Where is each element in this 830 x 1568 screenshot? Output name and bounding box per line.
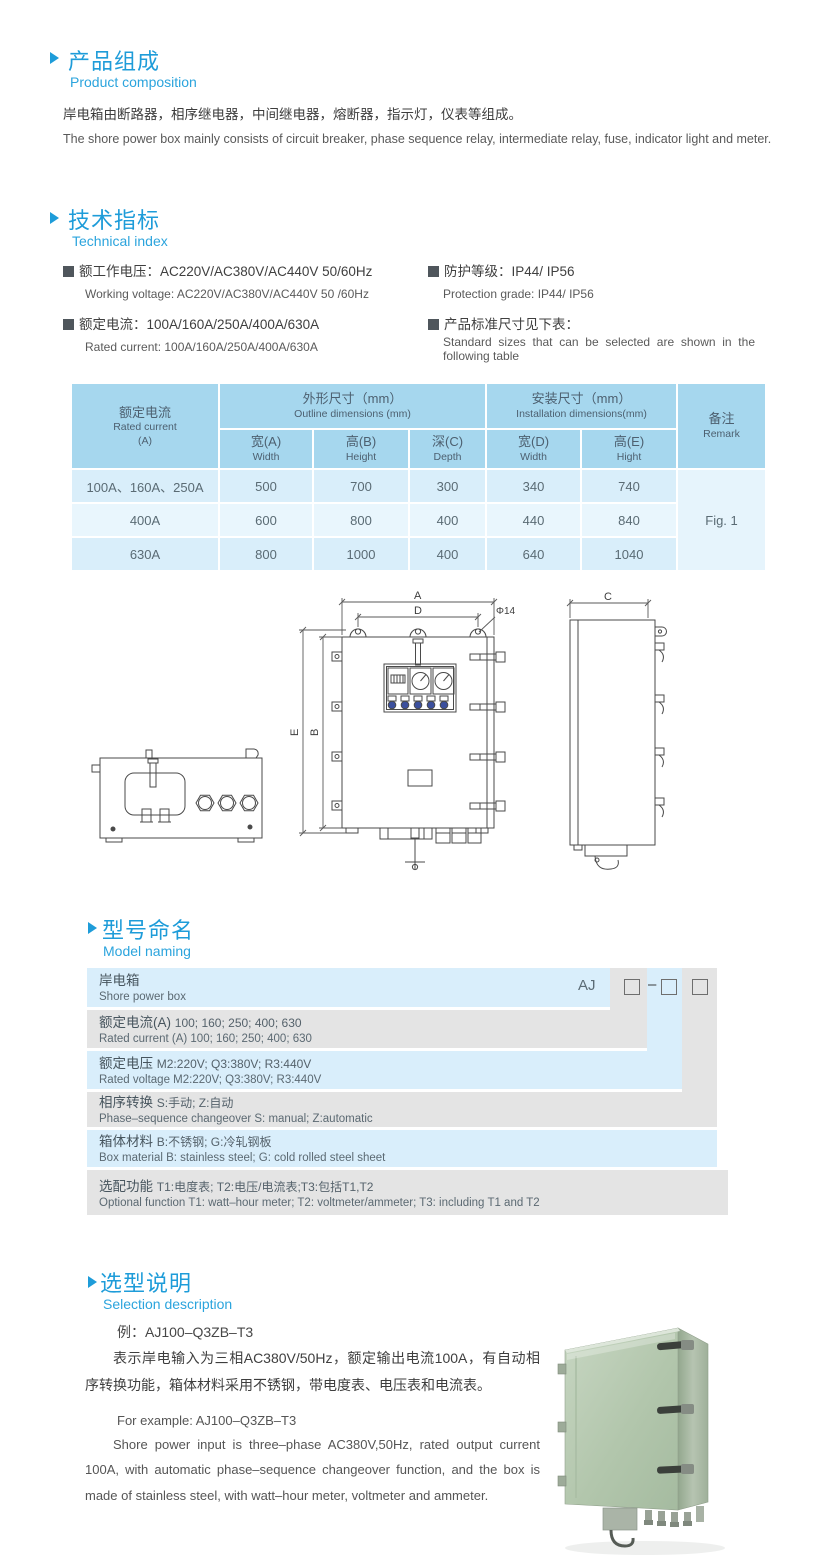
spec-standard-size-cn: 产品标准尺寸见下表：: [444, 317, 579, 332]
spec-protection: 防护等级：IP44/ IP56: [428, 260, 575, 280]
technical-title-en: Technical index: [72, 233, 168, 249]
cell-height: 800: [313, 503, 409, 537]
naming-desc-en: T1: watt–hour meter; T2: voltmeter/ammet…: [188, 1197, 539, 1209]
cell-install-height: 1040: [581, 537, 677, 571]
naming-desc-cn: B:不锈钢; G:冷轧钢板: [157, 1135, 272, 1149]
subheader-en: Hight: [582, 451, 676, 465]
header-outline-en: Outline dimensions (mm): [220, 408, 485, 422]
indicator-lights: [388, 696, 448, 709]
naming-label-en: Rated current (A): [99, 1033, 187, 1045]
spec-protection-en: Protection grade: IP44/ IP56: [443, 287, 594, 301]
naming-label-en: Shore power box: [99, 991, 186, 1003]
composition-body-cn: 岸电箱由断路器，相序继电器，中间继电器，熔断器，指示灯，仪表等组成。: [63, 103, 522, 123]
model-code-dash: –: [648, 976, 656, 993]
cell-current: 100A、160A、250A: [71, 469, 219, 503]
naming-row-shore-power-box: 岸电箱 Shore power box: [99, 972, 186, 1005]
cell-current: 630A: [71, 537, 219, 571]
dimension-labels: A D Φ14 E B C: [289, 590, 612, 736]
dim-label-c: C: [604, 591, 612, 603]
size-table: 额定电流 Rated current (A) 外形尺寸（mm） Outline …: [70, 382, 767, 572]
cell-install-width: 440: [486, 503, 581, 537]
dimension-lines: [299, 598, 651, 836]
product-photo: [545, 1298, 730, 1568]
naming-label-cn: 额定电压: [99, 1056, 153, 1071]
square-bullet-icon: [428, 319, 439, 330]
naming-row-rated-current: 额定电流(A) 100; 160; 250; 400; 630 Rated cu…: [99, 1014, 312, 1047]
technical-drawing: A D Φ14 E B C: [80, 583, 770, 888]
cell-install-height: 840: [581, 503, 677, 537]
subheader-en: Height: [314, 451, 408, 465]
section-arrow-icon: [50, 212, 59, 224]
selection-title-en: Selection description: [103, 1296, 232, 1312]
spec-rated-current: 额定电流：100A/160A/250A/400A/630A: [63, 313, 319, 333]
header-rated-current-unit: (A): [72, 435, 218, 449]
naming-row-rated-voltage: 额定电压 M2:220V; Q3:380V; R3:440V Rated vol…: [99, 1055, 321, 1088]
square-bullet-icon: [428, 266, 439, 277]
spec-standard-size-en: Standard sizes that can be selected are …: [443, 335, 755, 363]
header-outline-cn: 外形尺寸（mm）: [220, 390, 485, 408]
spec-standard-size: 产品标准尺寸见下表：: [428, 313, 579, 333]
subheader-width-d: 宽(D)Width: [486, 429, 581, 469]
subheader-width-a: 宽(A)Width: [219, 429, 313, 469]
cell-install-width: 340: [486, 469, 581, 503]
spec-working-voltage-en: Working voltage: AC220V/AC380V/AC440V 50…: [85, 287, 369, 301]
cell-width: 500: [219, 469, 313, 503]
subheader-height-b: 高(B)Height: [313, 429, 409, 469]
composition-title-cn: 产品组成: [68, 44, 160, 76]
subheader-cn: 宽(D): [487, 433, 580, 451]
selection-example-cn: 例：AJ100–Q3ZB–T3: [117, 1322, 253, 1342]
table-row: 630A 800 1000 400 640 1040: [71, 537, 766, 571]
model-code-box-3: [692, 979, 708, 995]
cell-width: 600: [219, 503, 313, 537]
subheader-cn: 高(B): [314, 433, 408, 451]
section-arrow-icon: [88, 1276, 97, 1288]
cell-current: 400A: [71, 503, 219, 537]
subheader-en: Width: [487, 451, 580, 465]
header-install-cn: 安装尺寸（mm）: [487, 390, 676, 408]
datasheet-page: 产品组成 Product composition 岸电箱由断路器，相序继电器，中…: [0, 0, 830, 1568]
subheader-cn: 宽(A): [220, 433, 312, 451]
model-code-box-1: [624, 979, 640, 995]
shadow: [565, 1541, 725, 1555]
bottom-view: [92, 749, 262, 842]
front-view: [332, 629, 505, 870]
header-remark-cn: 备注: [678, 410, 765, 428]
table-row: 100A、160A、250A 500 700 300 340 740 Fig. …: [71, 469, 766, 503]
selection-body-cn: 表示岸电输入为三相AC380V/50Hz，额定输出电流100A，有自动相序转换功…: [85, 1345, 540, 1398]
box-side-face: [678, 1328, 708, 1510]
header-install-en: Installation dimensions(mm): [487, 408, 676, 422]
naming-desc-en: M2:220V; Q3:380V; R3:440V: [173, 1074, 321, 1086]
selection-title-cn: 选型说明: [100, 1266, 192, 1298]
header-remark: 备注 Remark: [677, 383, 766, 469]
naming-label-cn: 箱体材料: [99, 1134, 153, 1149]
spec-working-voltage: 额工作电压：AC220V/AC380V/AC440V 50/60Hz: [63, 260, 372, 280]
cell-install-width: 640: [486, 537, 581, 571]
section-arrow-icon: [50, 52, 59, 64]
cell-depth: 400: [409, 537, 486, 571]
cell-width: 800: [219, 537, 313, 571]
composition-title-en: Product composition: [70, 74, 197, 90]
cell-install-height: 740: [581, 469, 677, 503]
selection-body-en: Shore power input is three–phase AC380V,…: [85, 1432, 540, 1508]
selection-example-en: For example: AJ100–Q3ZB–T3: [117, 1408, 296, 1433]
subheader-en: Width: [220, 451, 312, 465]
spec-working-voltage-cn: 额工作电压：AC220V/AC380V/AC440V 50/60Hz: [79, 264, 372, 279]
header-remark-en: Remark: [678, 428, 765, 442]
naming-desc-cn: T1:电度表; T2:电压/电流表;T3:包括T1,T2: [157, 1180, 374, 1194]
cell-height: 700: [313, 469, 409, 503]
table-row: 400A 600 800 400 440 840: [71, 503, 766, 537]
header-install-dims: 安装尺寸（mm） Installation dimensions(mm): [486, 383, 677, 429]
naming-desc-en: S: manual; Z:automatic: [254, 1113, 372, 1125]
cell-height: 1000: [313, 537, 409, 571]
subheader-depth-c: 深(C)Depth: [409, 429, 486, 469]
model-code-box-2: [661, 979, 677, 995]
cell-depth: 400: [409, 503, 486, 537]
model-naming-title-cn: 型号命名: [102, 913, 194, 945]
dim-label-a: A: [414, 590, 422, 602]
cell-remark: Fig. 1: [677, 469, 766, 571]
square-bullet-icon: [63, 266, 74, 277]
side-view: [570, 620, 667, 869]
naming-label-cn: 岸电箱: [99, 973, 140, 988]
naming-row-optional-function: 选配功能 T1:电度表; T2:电压/电流表;T3:包括T1,T2 Option…: [99, 1178, 540, 1211]
subheader-cn: 深(C): [410, 433, 485, 451]
model-naming-title-en: Model naming: [103, 943, 191, 959]
spec-protection-cn: 防护等级：IP44/ IP56: [444, 264, 575, 279]
naming-label-cn: 选配功能: [99, 1179, 153, 1194]
naming-label-en: Phase–sequence changeover: [99, 1113, 251, 1125]
dim-label-hole: Φ14: [496, 606, 516, 617]
naming-row-phase-sequence: 相序转换 S:手动; Z:自动 Phase–sequence changeove…: [99, 1094, 373, 1127]
bottom-hardware: [603, 1506, 704, 1546]
header-rated-current-en: Rated current: [72, 421, 218, 435]
naming-desc-cn: S:手动; Z:自动: [157, 1096, 234, 1110]
naming-label-cn: 额定电流(A): [99, 1015, 171, 1030]
naming-label-en: Optional function: [99, 1197, 185, 1209]
naming-label-en: Box material: [99, 1152, 163, 1164]
subheader-height-e: 高(E)Hight: [581, 429, 677, 469]
naming-desc-en: 100; 160; 250; 400; 630: [190, 1033, 312, 1045]
dim-label-e: E: [289, 729, 301, 736]
naming-row-box-material: 箱体材料 B:不锈钢; G:冷轧钢板 Box material B: stain…: [99, 1133, 385, 1166]
square-bullet-icon: [63, 319, 74, 330]
dim-label-d: D: [414, 605, 422, 617]
header-rated-current-cn: 额定电流: [72, 404, 218, 422]
header-rated-current: 额定电流 Rated current (A): [71, 383, 219, 469]
naming-label-cn: 相序转换: [99, 1095, 153, 1110]
subheader-cn: 高(E): [582, 433, 676, 451]
technical-title-cn: 技术指标: [68, 203, 160, 235]
spec-rated-current-en: Rated current: 100A/160A/250A/400A/630A: [85, 340, 318, 354]
composition-body-en: The shore power box mainly consists of c…: [63, 132, 771, 146]
naming-desc-cn: M2:220V; Q3:380V; R3:440V: [157, 1057, 312, 1071]
naming-desc-en: B: stainless steel; G: cold rolled steel…: [166, 1152, 385, 1164]
cell-depth: 300: [409, 469, 486, 503]
subheader-en: Depth: [410, 451, 485, 465]
dim-label-b: B: [309, 729, 321, 736]
model-prefix: AJ: [578, 977, 596, 994]
header-outline-dims: 外形尺寸（mm） Outline dimensions (mm): [219, 383, 486, 429]
naming-desc-cn: 100; 160; 250; 400; 630: [175, 1016, 302, 1030]
section-arrow-icon: [88, 922, 97, 934]
spec-rated-current-cn: 额定电流：100A/160A/250A/400A/630A: [79, 317, 319, 332]
naming-label-en: Rated voltage: [99, 1074, 170, 1086]
